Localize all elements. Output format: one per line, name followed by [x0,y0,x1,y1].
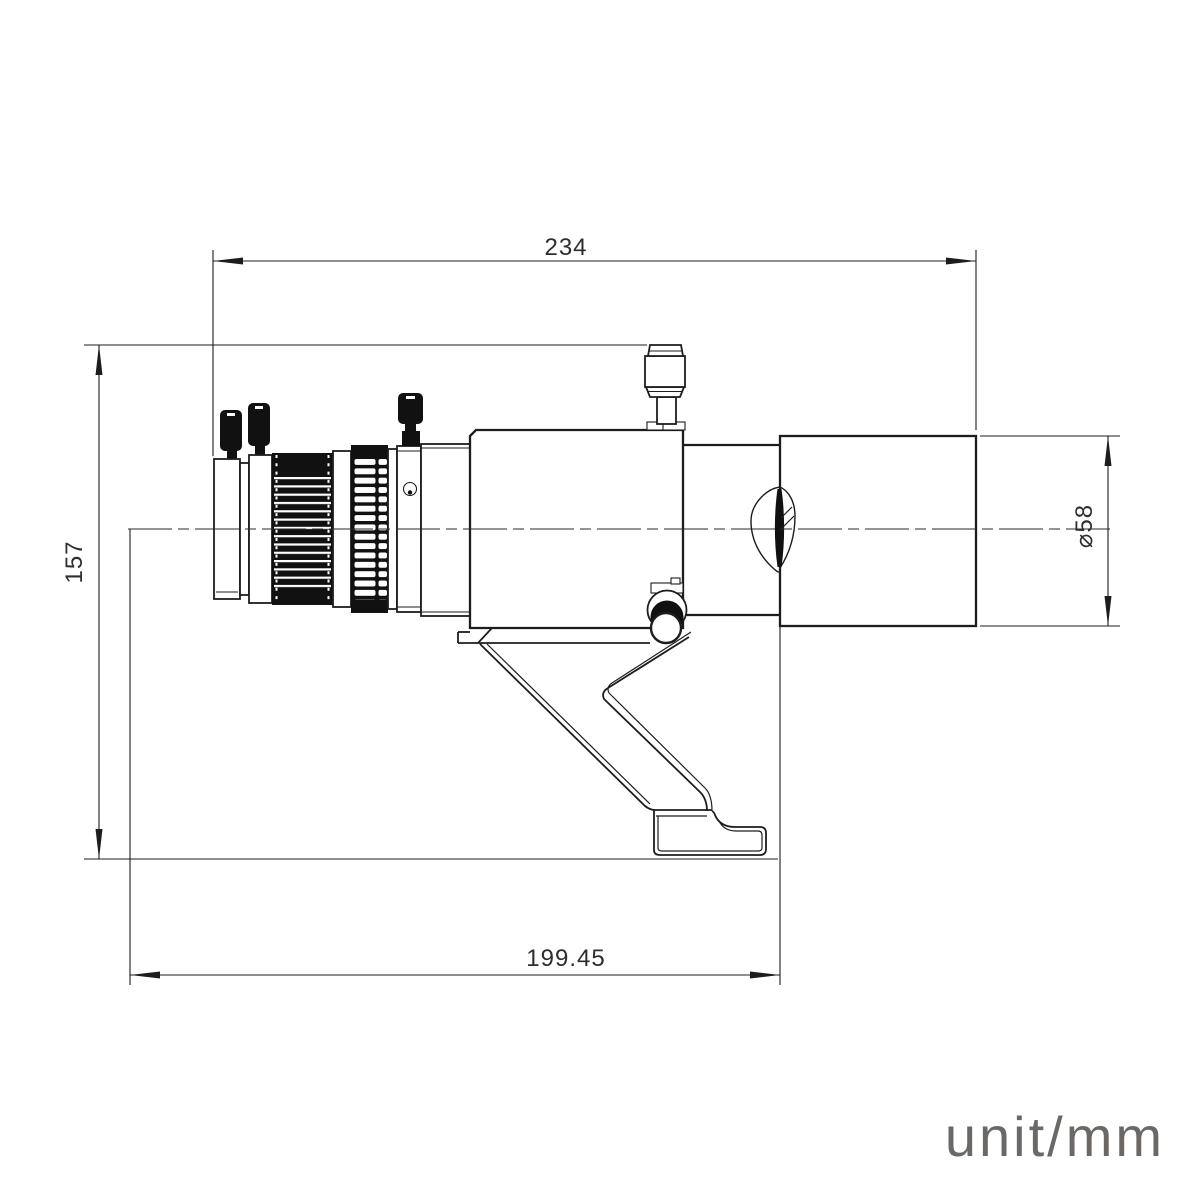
dew-shield [780,436,976,626]
unit-label: unit/mm [945,1105,1165,1168]
focus-knob-stem [657,397,676,424]
tension-knob [648,578,687,643]
dimension-label-diameter-58: ⌀58 [1071,504,1098,548]
dimension-label-199-45: 199.45 [526,945,605,972]
drawing-page: 234 157 ⌀58 199.45 unit/mm [0,0,1200,1200]
focuser-drawtube [421,444,470,616]
focus-knob [645,345,685,430]
eyepiece-assembly [214,393,470,616]
dimension-label-234: 234 [544,234,587,261]
dimension-label-157: 157 [61,540,88,583]
collar-thumbscrew-icon [398,393,423,446]
eyepiece-thumbscrew-icon [248,403,270,457]
dimension-tube-diameter: ⌀58 [980,436,1120,626]
eyepiece-thumbscrew-icon [220,410,242,461]
technical-drawing-canvas: 234 157 ⌀58 199.45 unit/mm [0,0,1200,1200]
mounting-bracket [458,628,766,855]
main-tube [683,445,780,615]
